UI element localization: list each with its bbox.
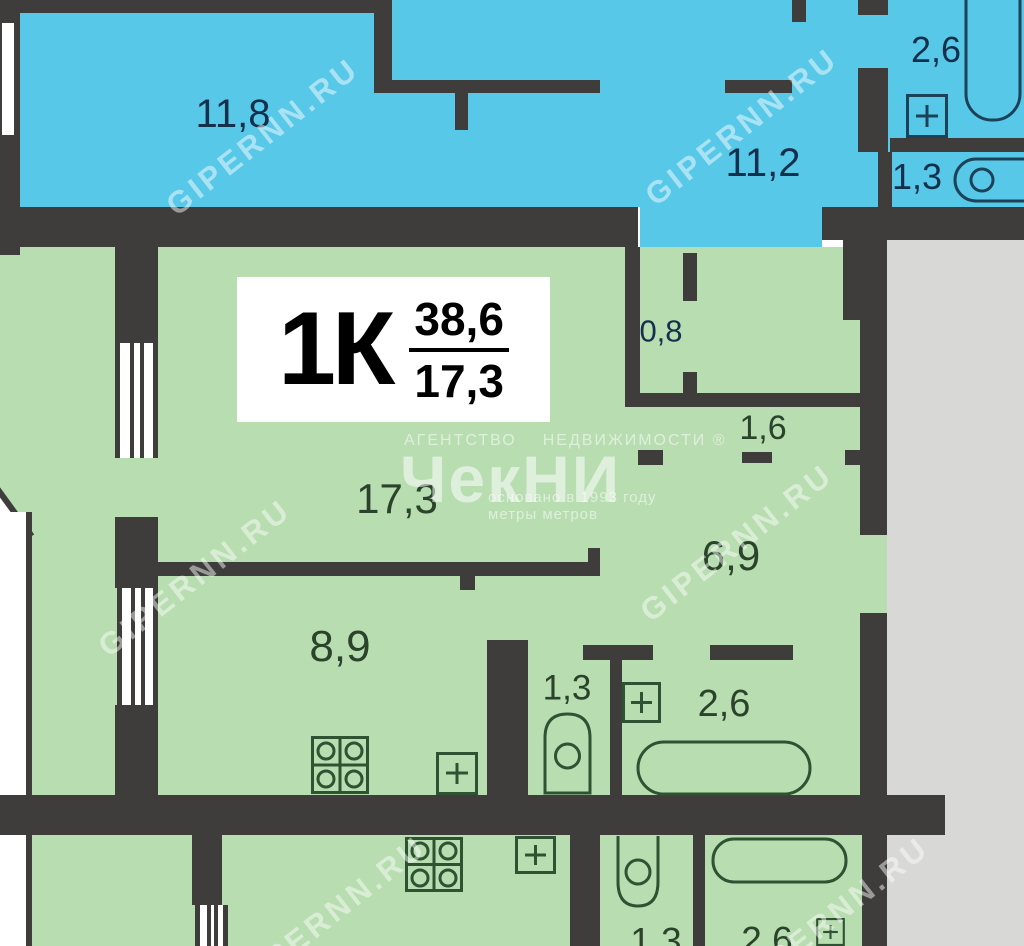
area-label-bathroom-top: 2,6 — [911, 32, 961, 68]
wall-segment — [845, 450, 867, 465]
area-label-wc-top: 1,3 — [892, 159, 942, 195]
apartment-area-fraction: 38,6 17,3 — [409, 292, 509, 408]
wall-segment — [487, 640, 528, 835]
toilet-icon — [616, 836, 660, 908]
wall-segment — [693, 835, 705, 946]
wall-segment — [500, 645, 528, 660]
wall-segment — [710, 645, 793, 660]
sink-icon — [515, 836, 556, 874]
wall-segment — [792, 0, 806, 22]
wall-segment — [583, 645, 653, 660]
wall-segment — [570, 835, 600, 946]
area-label-entry-hall: 1,6 — [739, 411, 786, 445]
area-label-kitchen: 8,9 — [309, 625, 370, 669]
wall-segment — [460, 576, 475, 590]
toilet-icon — [543, 712, 592, 795]
balcony-outside-strip-lower — [0, 835, 26, 946]
sink-icon — [436, 752, 478, 795]
wall-segment — [683, 253, 697, 301]
floor-plan: 11,8 11,2 2,6 1,3 0,8 1,6 6,9 17,3 8,9 1… — [0, 0, 1024, 946]
balcony-glazing-line-lower — [26, 835, 32, 946]
wall-segment — [843, 237, 887, 320]
wall-segment — [878, 152, 892, 210]
apartment-total-area: 38,6 — [409, 292, 509, 352]
apartment-title-box: 1К 38,6 17,3 — [237, 277, 550, 422]
area-label-wc-lower: 1,3 — [630, 923, 681, 946]
wall-segment — [822, 207, 1024, 240]
area-label-closet: 0,8 — [639, 316, 682, 347]
wall-segment — [858, 68, 888, 152]
wall-segment — [890, 138, 1024, 152]
toilet-icon — [953, 157, 1024, 203]
stove-icon — [311, 736, 369, 794]
wall-segment — [858, 0, 888, 15]
sink-icon — [906, 94, 948, 138]
agency-watermark-slogan: метры метров — [488, 506, 598, 523]
wall-segment — [860, 320, 887, 535]
wall-segment — [860, 613, 887, 795]
wall-segment — [455, 93, 468, 130]
area-label-bathroom: 2,6 — [698, 685, 751, 723]
wall-segment — [374, 80, 600, 93]
apartment-rooms-count: 1К — [278, 290, 391, 409]
wall-segment — [18, 0, 374, 13]
wall-segment — [610, 660, 622, 807]
wall-segment — [638, 450, 663, 465]
window — [2, 23, 14, 135]
area-label-wc: 1,3 — [543, 671, 592, 706]
wall-segment — [115, 517, 158, 588]
wall-segment — [683, 372, 697, 395]
bathtub-icon — [964, 0, 1022, 122]
bathtub-icon — [636, 740, 812, 796]
wall-segment — [0, 207, 638, 247]
wall-segment — [192, 835, 222, 905]
window — [115, 343, 158, 458]
balcony-outside-strip — [0, 512, 26, 795]
wall-segment — [742, 452, 772, 463]
wall-segment — [588, 548, 600, 562]
balcony-glazing-line — [26, 512, 32, 795]
wall-segment — [625, 247, 640, 395]
sink-icon — [622, 682, 661, 723]
wall-segment — [0, 795, 945, 835]
window — [195, 905, 228, 946]
wall-segment — [625, 393, 887, 407]
wall-segment — [115, 705, 158, 795]
agency-watermark-founded: основано в 1993 году — [488, 489, 656, 506]
apartment-living-area: 17,3 — [414, 352, 504, 408]
bathtub-icon — [711, 837, 848, 884]
wall-segment — [115, 247, 158, 343]
